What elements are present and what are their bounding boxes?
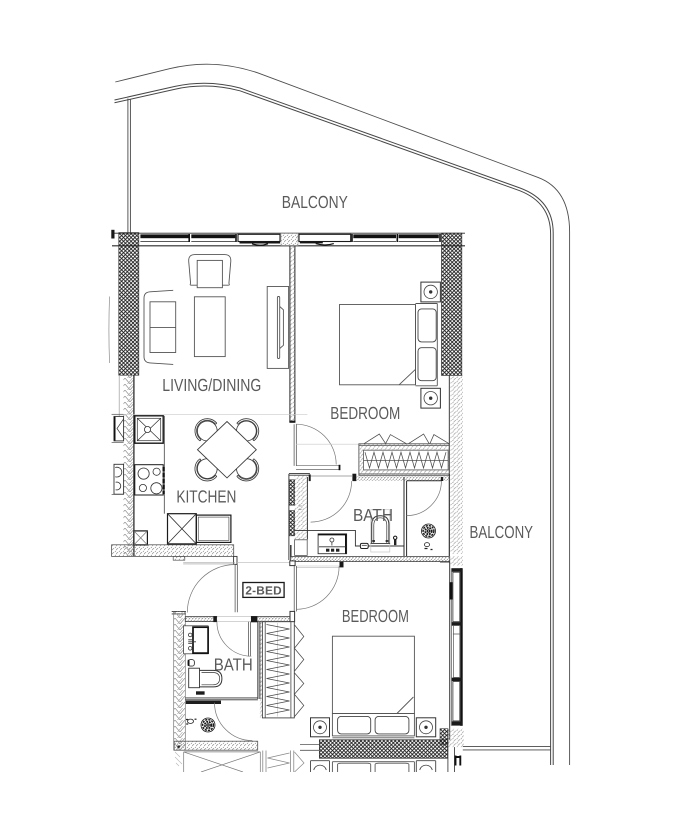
- svg-text:BALCONY: BALCONY: [470, 522, 534, 542]
- svg-text:BEDROOM: BEDROOM: [330, 403, 400, 423]
- svg-text:LIVING/DINING: LIVING/DINING: [162, 375, 261, 395]
- svg-text:BATH: BATH: [353, 505, 393, 525]
- svg-text:BALCONY: BALCONY: [282, 192, 348, 212]
- svg-text:2-BED: 2-BED: [245, 583, 282, 597]
- svg-text:KITCHEN: KITCHEN: [176, 487, 236, 507]
- svg-text:BEDROOM: BEDROOM: [342, 606, 409, 626]
- svg-text:BATH: BATH: [214, 655, 253, 675]
